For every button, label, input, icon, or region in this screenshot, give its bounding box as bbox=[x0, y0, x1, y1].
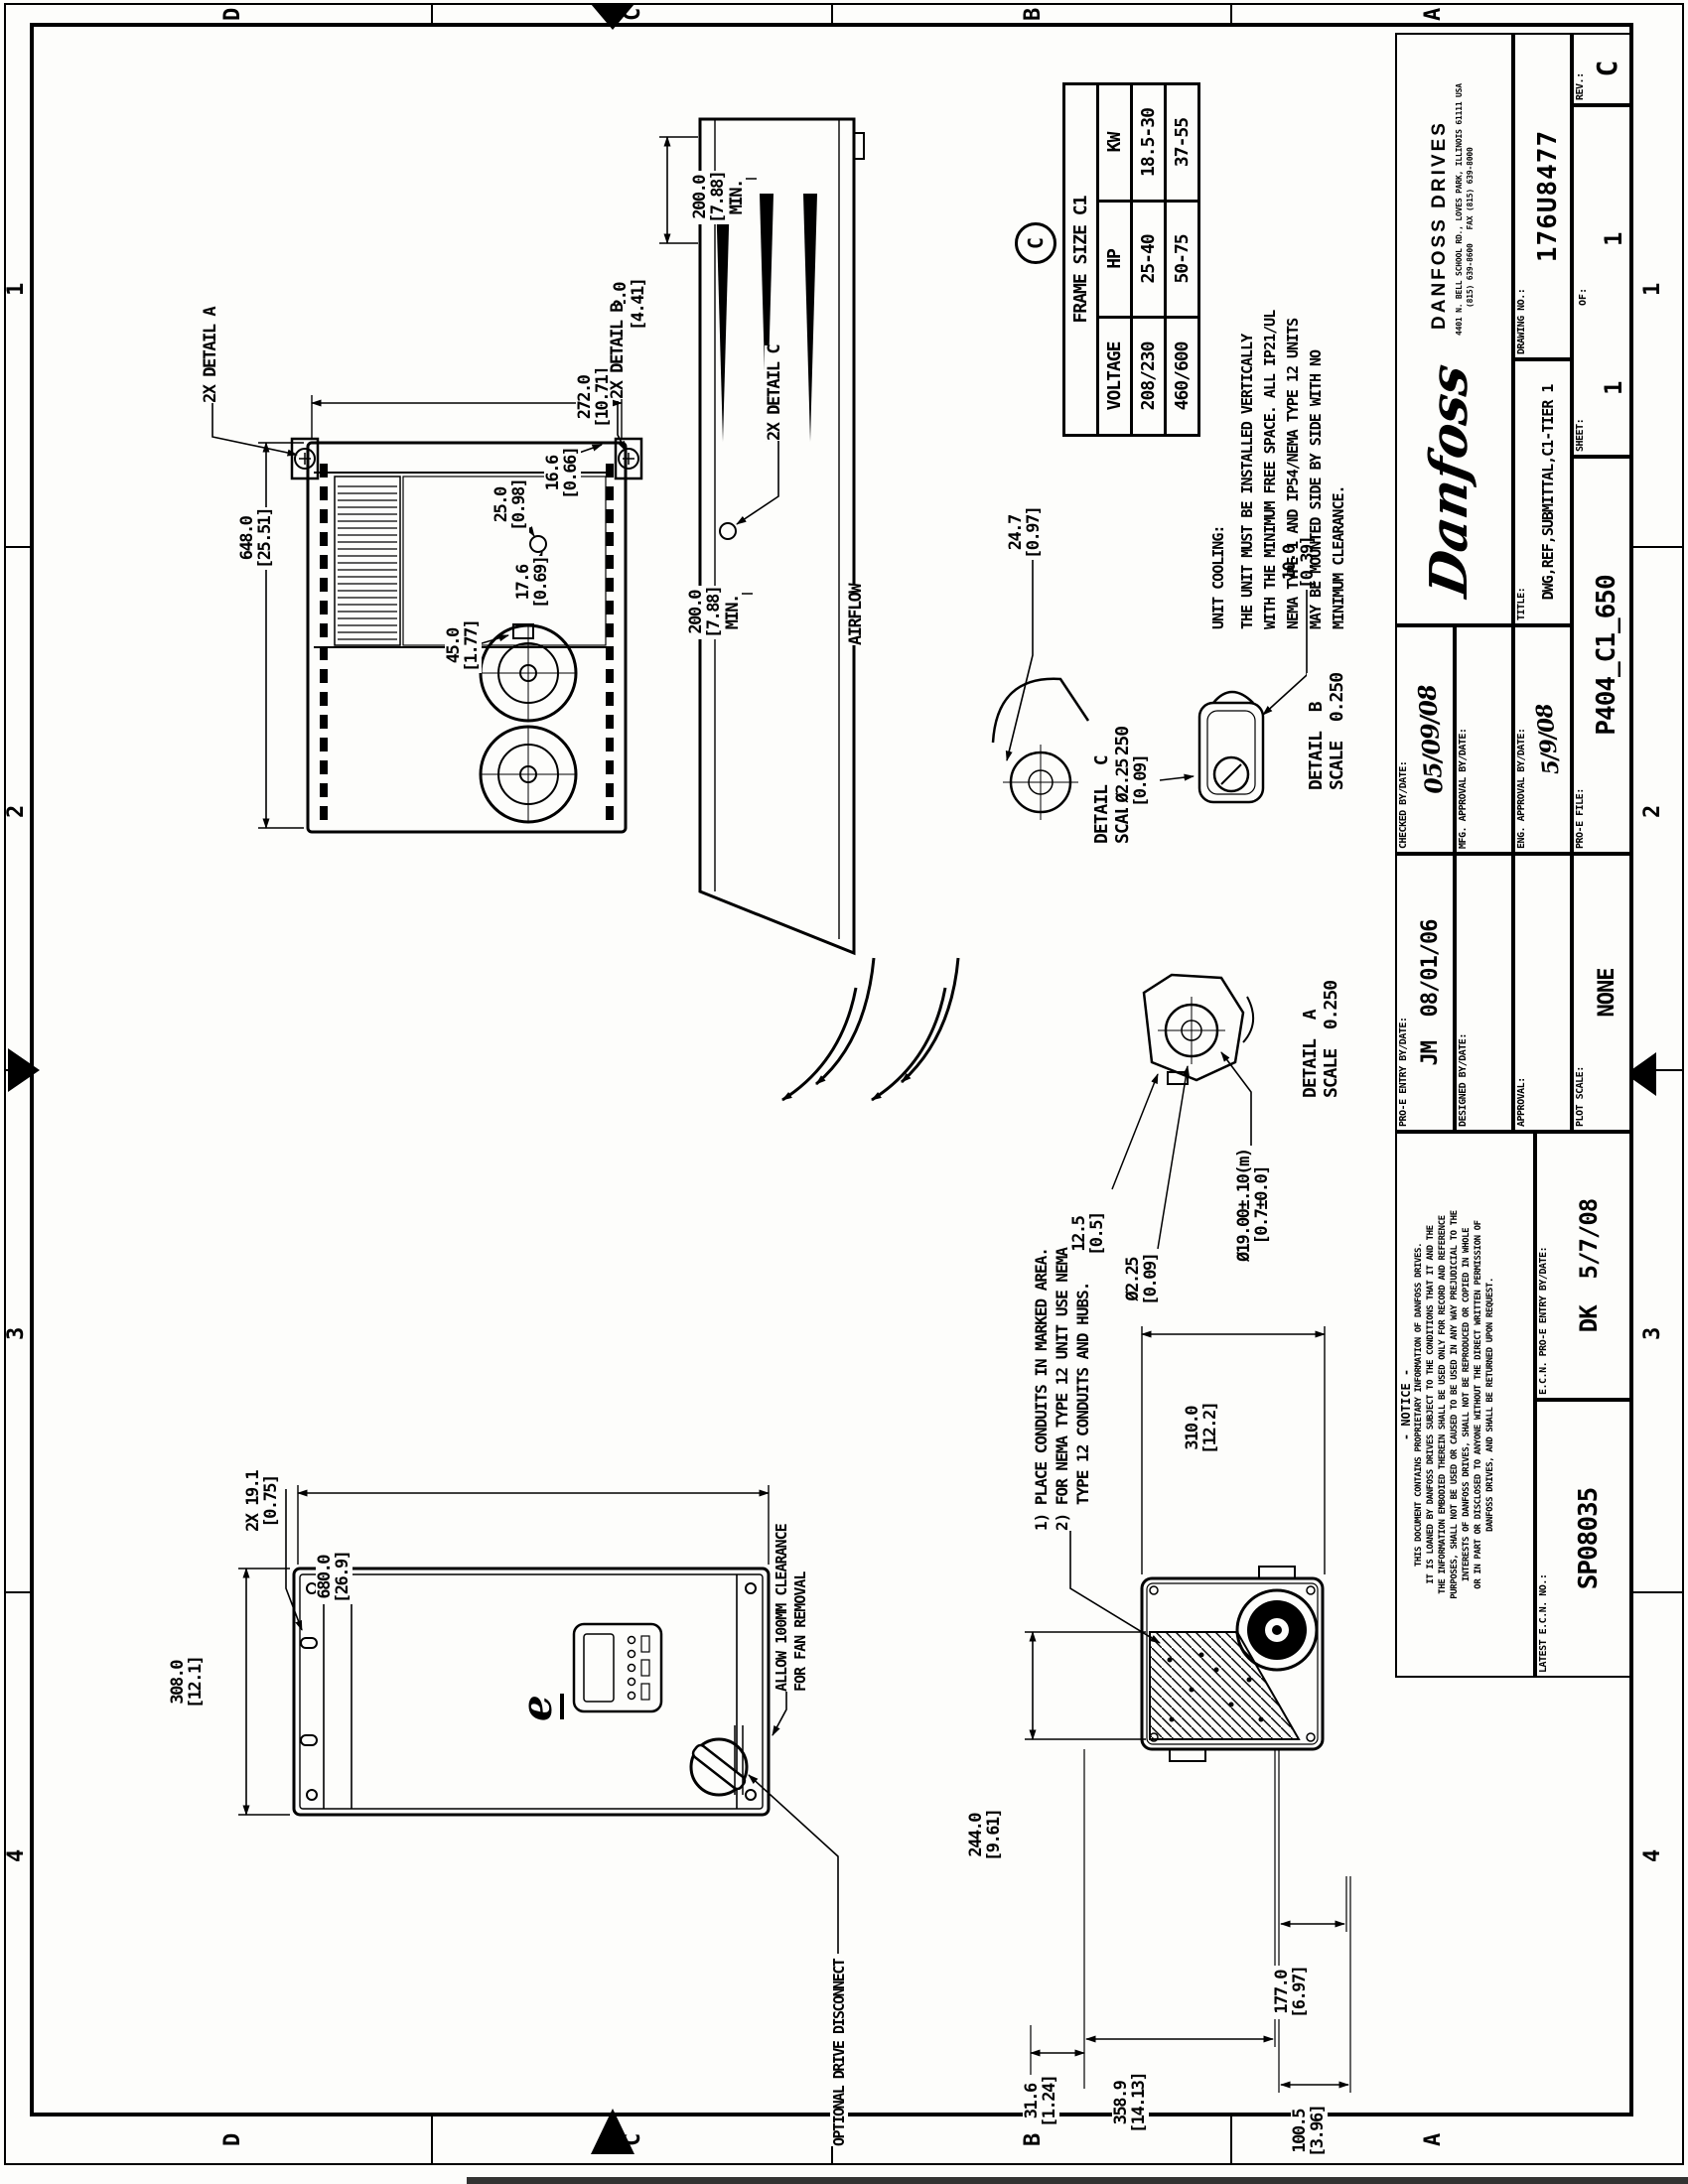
dim-31-6: 31.6[1.24] bbox=[1023, 2075, 1059, 2128]
checked-cell: CHECKED BY/DATE: 05/09/08 bbox=[1395, 625, 1455, 854]
dim-19-00: Ø19.00±.10(m)[0.7±0.0] bbox=[1235, 1148, 1272, 1263]
company-name: DANFOSS DRIVES bbox=[1429, 120, 1451, 330]
zone-col-3-bottom: 3 bbox=[1640, 1328, 1665, 1340]
disconnect-switch bbox=[691, 1739, 747, 1795]
dim-308: 308.0[12.1] bbox=[169, 1656, 206, 1709]
zone-col-2-bottom: 2 bbox=[1640, 806, 1665, 818]
dim-2-25-b: Ø2.25[0.09] bbox=[1114, 754, 1151, 808]
detail-a-caption: DETAIL ASCALE 0.250 bbox=[1301, 981, 1341, 1098]
dim-2x19: 2X 19.1[0.75] bbox=[244, 1470, 281, 1533]
keypad bbox=[574, 1624, 661, 1711]
latest-ecn-cell: LATEST E.C.N. NO.: SP08035 bbox=[1535, 1400, 1631, 1678]
danfoss-e-logo: e bbox=[512, 1695, 561, 1721]
detail-a-view bbox=[1112, 975, 1253, 1249]
detail-c-view bbox=[993, 560, 1088, 820]
zone-col-3-top: 3 bbox=[4, 1328, 29, 1340]
drawing-sheet: 4 3 2 1 4 3 2 1 D C B A D C B A 308.0[12… bbox=[0, 0, 1688, 2184]
airflow-label: AIRFLOW bbox=[846, 585, 866, 645]
dim-200-min-right: 200.0[7.88]MIN. bbox=[691, 171, 746, 224]
dim-24-7: 24.7[0.97] bbox=[1007, 506, 1044, 560]
dim-17-6: 17.6[0.69] bbox=[514, 556, 551, 610]
dim-244: 244.0[9.61] bbox=[967, 1809, 1004, 1862]
zone-row-c-right: C bbox=[621, 9, 645, 21]
mfg-approval-cell: MFG. APPROVAL BY/DATE: bbox=[1455, 625, 1513, 854]
plot-scale-cell: PLOT SCALE: NONE bbox=[1572, 854, 1631, 1132]
ecn-entry-cell: E.C.N. PRO-E ENTRY BY/DATE: DK 5/7/08 bbox=[1535, 1132, 1631, 1400]
zone-col-2-top: 2 bbox=[4, 806, 29, 818]
drawing-no-cell: DRAWING NO.: 176U8477 bbox=[1513, 33, 1572, 359]
dim-25-0: 25.0[0.98] bbox=[492, 478, 529, 532]
dim-358-9: 358.9[14.13] bbox=[1112, 2072, 1149, 2134]
rev-value: C bbox=[1584, 35, 1629, 103]
detail-c-callout: 2X DETAIL C bbox=[765, 345, 784, 441]
zone-row-d-right: D bbox=[220, 9, 245, 21]
rev-cell: REV.: C bbox=[1572, 33, 1631, 105]
zone-row-c-left: C bbox=[621, 2134, 645, 2146]
dim-680: 680.0[26.9] bbox=[316, 1551, 352, 1604]
dim-200-min-left: 200.0[7.88]MIN. bbox=[687, 586, 742, 639]
approval-cell: APPROVAL: bbox=[1513, 854, 1572, 1132]
proe-file-cell: PRO-E FILE: P404_C1_650 bbox=[1572, 457, 1631, 854]
dim-648: 648.0[25.51] bbox=[238, 507, 275, 570]
col-voltage: VOLTAGE bbox=[1098, 317, 1132, 435]
dim-177: 177.0[6.97] bbox=[1273, 1966, 1310, 2019]
zone-arrow-top bbox=[8, 1048, 40, 1092]
company-logo-cell: Danfoss DANFOSS DRIVES 4401 N. BELL SCHO… bbox=[1395, 33, 1513, 625]
sheet-cell: SHEET: 1 OF: 1 bbox=[1572, 105, 1631, 457]
frame-size-table: FRAME SIZE C1 VOLTAGE HP KW 208/230 25-4… bbox=[1062, 82, 1200, 437]
knockout bbox=[530, 536, 546, 552]
dim-45-0: 45.0[1.77] bbox=[445, 619, 482, 673]
designed-cell: DESIGNED BY/DATE: bbox=[1455, 854, 1513, 1132]
unit-cooling-note: UNIT COOLING: THE UNIT MUST BE INSTALLED… bbox=[1207, 311, 1350, 629]
company-address-2: (815) 639-8600 FAX (815) 639-8000 bbox=[1466, 147, 1475, 308]
fans bbox=[481, 625, 576, 822]
frame-table-title: FRAME SIZE C1 bbox=[1064, 84, 1098, 436]
danfoss-script-logo: Danfoss bbox=[1419, 359, 1479, 601]
detail-b-caption: DETAIL BSCALE 0.250 bbox=[1307, 673, 1347, 790]
col-kw: KW bbox=[1098, 84, 1132, 202]
title-cell: TITLE: DWG,REF,SUBMITTAL,C1-TIER 1 bbox=[1513, 359, 1572, 625]
dim-100-5: 100.5[3.96] bbox=[1291, 2105, 1328, 2158]
zone-col-1-bottom: 1 bbox=[1640, 284, 1665, 296]
company-address-1: 4401 N. BELL SCHOOL RD., LOVES PARK, ILL… bbox=[1455, 83, 1464, 336]
drawing-number: 176U8477 bbox=[1525, 35, 1570, 357]
eng-approval-cell: ENG. APPROVAL BY/DATE: 5/9/08 bbox=[1513, 625, 1572, 854]
conduit-note: 1) PLACE CONDUITS IN MARKED AREA. 2) FOR… bbox=[1031, 1248, 1093, 1531]
notice-block: - NOTICE - THIS DOCUMENT CONTAINS PROPRI… bbox=[1395, 1132, 1535, 1678]
airflow-arrows bbox=[782, 958, 958, 1100]
table-row: 208/230 25-40 18.5-30 bbox=[1132, 84, 1166, 436]
dim-2-25-a: Ø2.25[0.09] bbox=[1124, 1253, 1161, 1306]
dim-16-6: 16.6[0.66] bbox=[544, 447, 581, 500]
drawing-title: DWG,REF,SUBMITTAL,C1-TIER 1 bbox=[1525, 361, 1570, 623]
zone-row-a-left: A bbox=[1421, 2134, 1446, 2146]
heatsink-fins bbox=[335, 477, 400, 645]
frame-size-marker: C bbox=[1015, 222, 1056, 264]
table-row: 460/600 50-75 37-55 bbox=[1166, 84, 1199, 436]
zone-row-a-right: A bbox=[1421, 9, 1446, 21]
fan-clearance-note: ALLOW 100MM CLEARANCE FOR FAN REMOVAL bbox=[773, 1524, 810, 1692]
dim-12-5: 12.5[0.5] bbox=[1070, 1211, 1107, 1257]
zone-col-4-bottom: 4 bbox=[1640, 1850, 1665, 1862]
zone-row-b-left: B bbox=[1021, 2134, 1046, 2146]
disconnect-label: OPTIONAL DRIVE DISCONNECT bbox=[830, 1960, 848, 2146]
zone-row-b-right: B bbox=[1021, 9, 1046, 21]
zone-col-4-top: 4 bbox=[4, 1850, 29, 1862]
dim-310: 310.0[12.2] bbox=[1184, 1402, 1220, 1455]
proe-entry-cell: PRO-E ENTRY BY/DATE: JM 08/01/06 bbox=[1395, 854, 1455, 1132]
zone-row-d-left: D bbox=[220, 2134, 245, 2146]
e-logo-bar bbox=[560, 1694, 564, 1719]
detail-b-callout: 2X DETAIL B bbox=[608, 304, 628, 399]
zone-col-1-top: 1 bbox=[4, 284, 29, 296]
scan-artifact bbox=[467, 2177, 1688, 2184]
detail-a-callout: 2X DETAIL A bbox=[201, 308, 220, 403]
col-hp: HP bbox=[1098, 202, 1132, 318]
